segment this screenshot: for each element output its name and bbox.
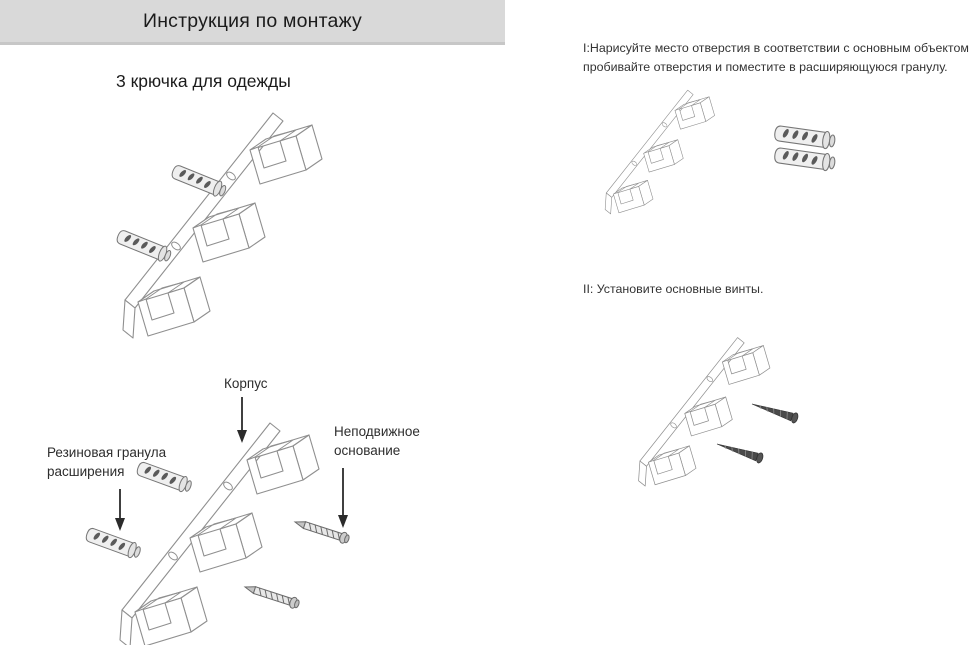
instruction-diagrams [0, 0, 970, 645]
step-1-drawing [605, 90, 836, 214]
screw-icon [750, 399, 799, 424]
screw-icon [715, 439, 764, 464]
instruction-sheet: Инструкция по монтажу 3 крючка для одежд… [0, 0, 970, 645]
wall-anchor-icon [84, 526, 142, 560]
exploded-assembly-drawing [84, 423, 350, 645]
wall-anchor-icon [774, 124, 836, 150]
wall-anchor-icon [135, 460, 193, 494]
main-assembly-drawing [115, 113, 322, 338]
wall-anchor-icon [774, 146, 836, 172]
wall-anchor-icon [170, 163, 228, 199]
wall-anchor-icon [115, 228, 173, 264]
screw-icon [243, 582, 300, 610]
step-2-drawing [639, 338, 799, 487]
